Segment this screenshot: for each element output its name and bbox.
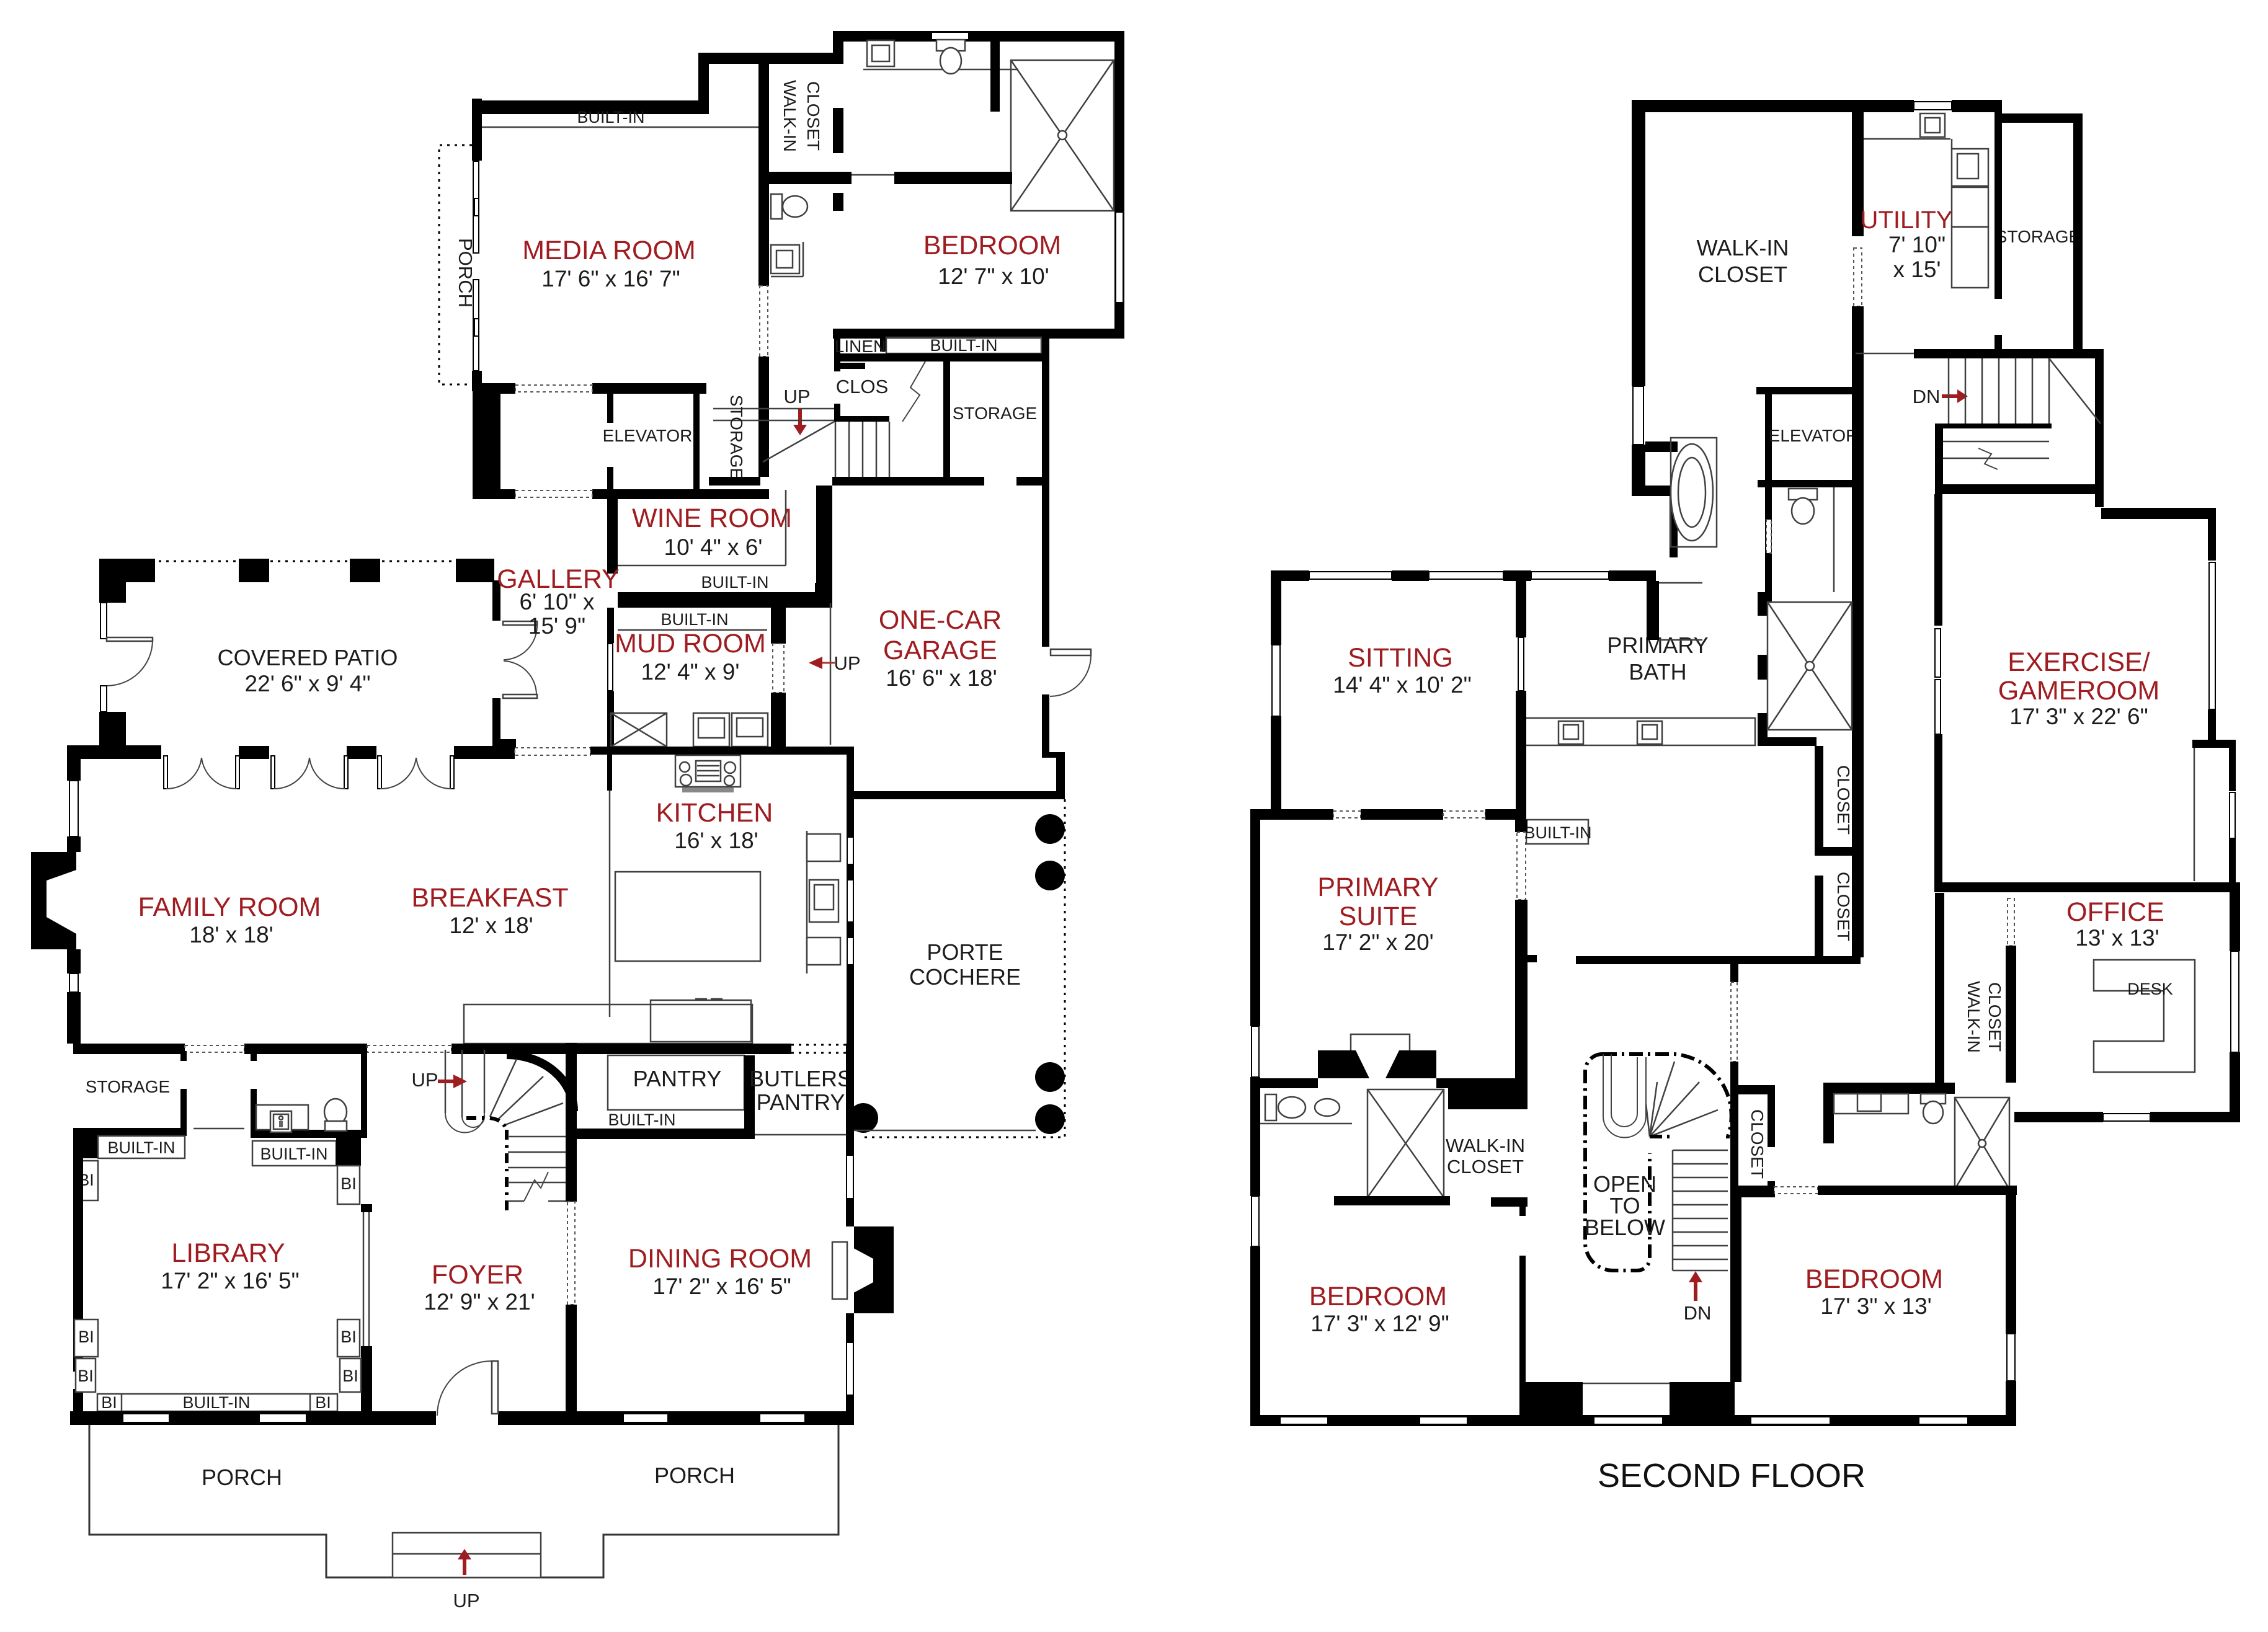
svg-text:DESK: DESK — [2127, 980, 2173, 998]
svg-text:BELOW: BELOW — [1585, 1215, 1665, 1240]
svg-text:16' x 18': 16' x 18' — [674, 828, 758, 853]
svg-text:LIBRARY: LIBRARY — [171, 1238, 285, 1268]
svg-text:WALK-IN: WALK-IN — [780, 80, 799, 152]
svg-text:DINING ROOM: DINING ROOM — [628, 1244, 812, 1274]
svg-text:17' 6" x 16' 7": 17' 6" x 16' 7" — [541, 266, 680, 291]
svg-text:BI: BI — [78, 1367, 94, 1385]
svg-text:BUILT-IN: BUILT-IN — [107, 1138, 175, 1157]
svg-text:UP: UP — [783, 386, 810, 407]
svg-text:17' 3" x 22' 6": 17' 3" x 22' 6" — [2009, 704, 2148, 729]
svg-text:CLOS: CLOS — [836, 376, 888, 397]
svg-text:BI: BI — [340, 1174, 357, 1193]
svg-text:BUILT-IN: BUILT-IN — [577, 108, 644, 126]
svg-text:BEDROOM: BEDROOM — [1309, 1282, 1447, 1311]
svg-text:7' 10": 7' 10" — [1888, 232, 1946, 257]
svg-text:COCHERE: COCHERE — [909, 964, 1021, 990]
svg-text:WALK-IN: WALK-IN — [1697, 235, 1789, 260]
svg-text:UP: UP — [834, 652, 860, 674]
svg-text:SECOND FLOOR: SECOND FLOOR — [1598, 1457, 1866, 1494]
svg-text:KITCHEN: KITCHEN — [656, 798, 773, 828]
svg-text:SUITE: SUITE — [1339, 902, 1418, 931]
svg-text:WINE ROOM: WINE ROOM — [632, 503, 792, 533]
svg-text:CLOSET: CLOSET — [804, 81, 823, 151]
svg-text:CLOSET: CLOSET — [1834, 872, 1853, 941]
svg-text:BUILT-IN: BUILT-IN — [1524, 823, 1591, 842]
svg-text:PRIMARY: PRIMARY — [1317, 872, 1438, 902]
svg-text:STORAGE: STORAGE — [727, 395, 746, 479]
svg-text:BUTLERS: BUTLERS — [749, 1066, 852, 1091]
svg-text:ONE-CAR: ONE-CAR — [879, 605, 1002, 635]
svg-text:17' 3" x 13': 17' 3" x 13' — [1820, 1293, 1932, 1319]
svg-text:CLOSET: CLOSET — [1447, 1156, 1524, 1177]
svg-text:FOYER: FOYER — [432, 1260, 523, 1290]
svg-text:12' x 18': 12' x 18' — [449, 913, 533, 938]
svg-text:BEDROOM: BEDROOM — [923, 231, 1061, 260]
svg-text:BATH: BATH — [1629, 659, 1686, 685]
svg-text:PORCH: PORCH — [455, 238, 476, 308]
svg-text:WALK-IN: WALK-IN — [1964, 981, 1983, 1053]
svg-text:DN: DN — [1684, 1302, 1712, 1324]
svg-text:BUILT-IN: BUILT-IN — [182, 1393, 250, 1412]
svg-text:UTILITY: UTILITY — [1861, 206, 1953, 234]
svg-text:12' 9" x 21': 12' 9" x 21' — [424, 1289, 535, 1315]
svg-text:FAMILY ROOM: FAMILY ROOM — [138, 892, 321, 922]
svg-text:PORCH: PORCH — [202, 1465, 282, 1490]
svg-text:BI: BI — [78, 1328, 94, 1346]
svg-text:ELEVATOR: ELEVATOR — [603, 426, 693, 445]
svg-text:BI: BI — [101, 1393, 117, 1412]
svg-text:UP: UP — [411, 1069, 438, 1091]
svg-text:14' 4" x 10' 2": 14' 4" x 10' 2" — [1333, 672, 1471, 698]
svg-text:MUD ROOM: MUD ROOM — [615, 629, 766, 659]
svg-text:12' 4" x 9': 12' 4" x 9' — [641, 659, 740, 685]
svg-text:12' 7" x 10': 12' 7" x 10' — [938, 264, 1049, 289]
svg-text:PORTE: PORTE — [927, 939, 1003, 965]
svg-text:CLOSET: CLOSET — [1698, 262, 1787, 287]
svg-text:GARAGE: GARAGE — [883, 636, 997, 665]
svg-text:18' x 18': 18' x 18' — [189, 922, 273, 947]
svg-text:BUILT-IN: BUILT-IN — [260, 1145, 327, 1163]
svg-text:17' 2" x 16' 5": 17' 2" x 16' 5" — [652, 1274, 791, 1299]
svg-text:CLOSET: CLOSET — [1748, 1109, 1767, 1179]
svg-text:COVERED PATIO: COVERED PATIO — [218, 645, 398, 670]
svg-text:STORAGE: STORAGE — [953, 404, 1037, 423]
svg-text:10' 4" x 6': 10' 4" x 6' — [664, 534, 763, 560]
svg-text:17' 2" x 16' 5": 17' 2" x 16' 5" — [161, 1268, 299, 1293]
svg-text:BUILT-IN: BUILT-IN — [608, 1111, 675, 1129]
svg-text:BREAKFAST: BREAKFAST — [411, 883, 568, 913]
svg-text:GAMEROOM: GAMEROOM — [1998, 676, 2159, 706]
svg-text:BI: BI — [340, 1328, 357, 1346]
svg-text:x 15': x 15' — [1893, 257, 1941, 282]
svg-text:BUILT-IN: BUILT-IN — [930, 336, 997, 355]
svg-text:ELEVATOR: ELEVATOR — [1769, 426, 1859, 445]
svg-text:6' 10" x: 6' 10" x — [520, 589, 595, 614]
svg-text:PANTRY: PANTRY — [757, 1089, 845, 1115]
svg-text:BEDROOM: BEDROOM — [1805, 1264, 1943, 1294]
svg-text:OFFICE: OFFICE — [2066, 897, 2164, 927]
svg-text:13' x 13': 13' x 13' — [2075, 925, 2159, 951]
svg-text:LINEN: LINEN — [835, 337, 886, 356]
svg-text:CLOSET: CLOSET — [1834, 765, 1853, 835]
svg-text:PORCH: PORCH — [654, 1463, 735, 1488]
svg-text:DN: DN — [1913, 386, 1941, 407]
svg-text:22' 6" x 9' 4": 22' 6" x 9' 4" — [245, 671, 371, 696]
svg-text:CLOSET: CLOSET — [1985, 982, 2004, 1052]
svg-text:EXERCISE/: EXERCISE/ — [2008, 647, 2150, 677]
svg-text:16' 6" x 18': 16' 6" x 18' — [886, 665, 997, 691]
svg-text:WALK-IN: WALK-IN — [1446, 1135, 1525, 1156]
svg-text:PANTRY: PANTRY — [633, 1066, 722, 1091]
svg-text:BI: BI — [342, 1367, 358, 1385]
svg-text:UP: UP — [453, 1590, 479, 1612]
svg-text:BI: BI — [315, 1393, 331, 1412]
svg-text:STORAGE: STORAGE — [86, 1077, 170, 1096]
svg-text:BUILT-IN: BUILT-IN — [701, 573, 768, 592]
svg-text:STORAGE: STORAGE — [1996, 227, 2080, 246]
svg-text:17' 2" x 20': 17' 2" x 20' — [1322, 929, 1434, 955]
svg-text:BUILT-IN: BUILT-IN — [660, 610, 728, 629]
svg-text:SITTING: SITTING — [1348, 643, 1453, 673]
svg-text:17' 3" x 12' 9": 17' 3" x 12' 9" — [1310, 1311, 1449, 1336]
svg-text:MEDIA ROOM: MEDIA ROOM — [522, 236, 696, 265]
svg-text:15' 9": 15' 9" — [528, 613, 585, 639]
